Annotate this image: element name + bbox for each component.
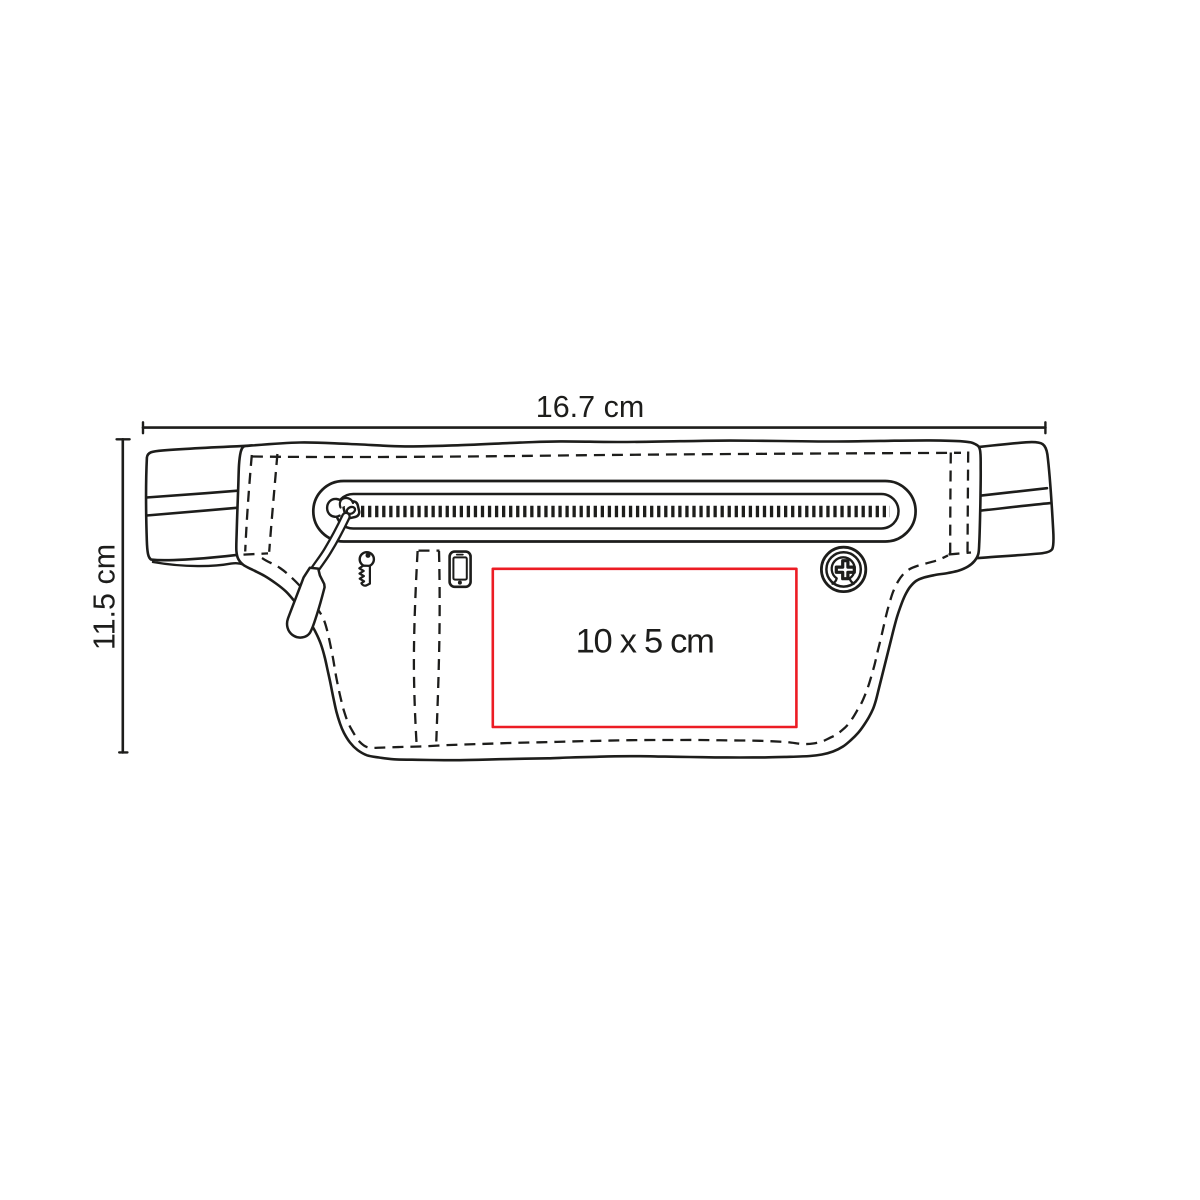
svg-text:10 x 5 cm: 10 x 5 cm bbox=[576, 623, 714, 661]
svg-text:16.7 cm: 16.7 cm bbox=[536, 390, 645, 424]
svg-text:11.5 cm: 11.5 cm bbox=[88, 544, 122, 650]
